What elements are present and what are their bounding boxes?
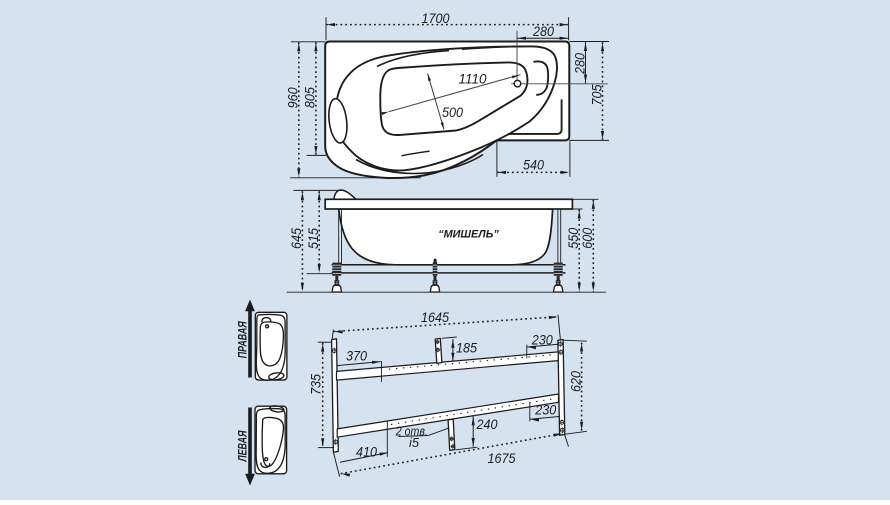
svg-text:410: 410 [356,444,377,460]
svg-text:705: 705 [588,84,604,105]
svg-text:500: 500 [442,104,463,120]
svg-text:735: 735 [308,374,324,395]
svg-text:805: 805 [302,87,318,108]
svg-text:960: 960 [285,87,301,108]
svg-text:1700: 1700 [422,10,450,26]
svg-text:370: 370 [346,348,367,364]
svg-text:1110: 1110 [459,71,487,87]
svg-text:230: 230 [531,331,553,347]
svg-text:515: 515 [305,228,321,249]
svg-text:ПРАВАЯ: ПРАВАЯ [238,321,250,358]
svg-text:“МИШЕЛЬ”: “МИШЕЛЬ” [438,228,499,240]
svg-text:230: 230 [534,401,556,417]
svg-text:ЛЕВАЯ: ЛЕВАЯ [238,430,250,462]
svg-text:1675: 1675 [488,450,516,466]
svg-text:645: 645 [288,228,304,249]
svg-text:280: 280 [532,23,554,39]
svg-text:1645: 1645 [421,309,449,325]
svg-text:185: 185 [456,339,477,355]
svg-text:600: 600 [579,228,595,249]
svg-text:i5: i5 [409,435,420,450]
svg-text:280: 280 [571,53,587,75]
svg-text:540: 540 [523,156,544,172]
svg-text:240: 240 [476,416,498,432]
svg-text:620: 620 [567,371,583,392]
